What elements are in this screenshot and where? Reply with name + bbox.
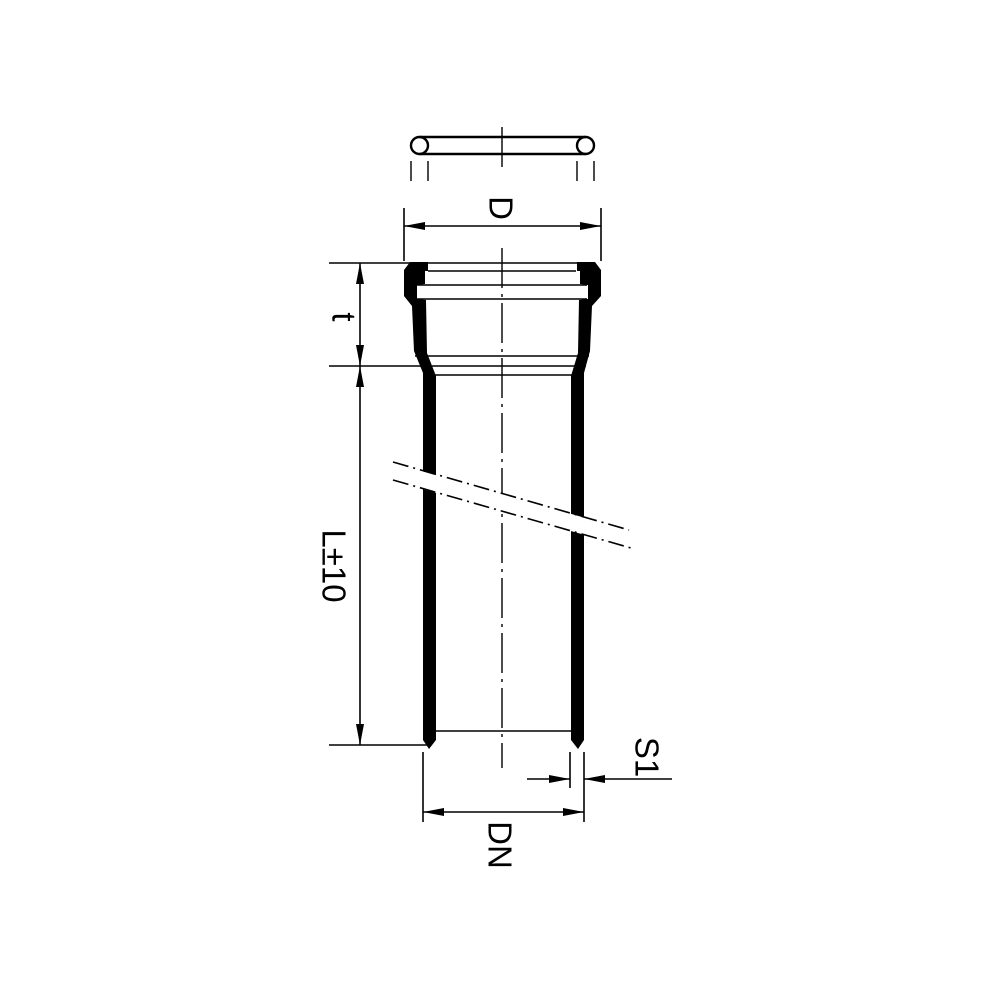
- label-DN: DN: [482, 821, 519, 869]
- technical-drawing-page: D t L±10 S1: [0, 0, 1000, 1000]
- pipe-technical-drawing: D t L±10 S1: [0, 0, 1000, 1000]
- label-D: D: [483, 196, 520, 220]
- o-ring-right-section: [577, 137, 594, 154]
- arrowhead-up-icon: [356, 263, 364, 284]
- pipe-wall-left: [404, 262, 436, 749]
- arrowhead-right-icon: [563, 808, 584, 816]
- pipe-wall-right: [571, 262, 601, 749]
- arrowhead-up-icon: [356, 366, 364, 387]
- arrowhead-right-icon: [580, 222, 601, 230]
- label-L: L±10: [316, 529, 353, 602]
- arrowhead-down-icon: [356, 345, 364, 366]
- o-ring-left-section: [411, 137, 428, 154]
- label-S1: S1: [629, 737, 666, 777]
- label-t: t: [326, 312, 363, 321]
- pipe-body: [329, 262, 601, 749]
- arrowhead-left-icon: [423, 808, 444, 816]
- arrowhead-right-icon: [549, 775, 570, 783]
- arrowhead-left-icon: [404, 222, 425, 230]
- dimension-S1: S1: [527, 737, 672, 822]
- arrowhead-left-icon: [584, 775, 605, 783]
- dimension-DN: DN: [423, 752, 584, 869]
- dimension-L: L±10: [316, 366, 429, 745]
- arrowhead-down-icon: [356, 724, 364, 745]
- dimension-t: t: [326, 263, 365, 366]
